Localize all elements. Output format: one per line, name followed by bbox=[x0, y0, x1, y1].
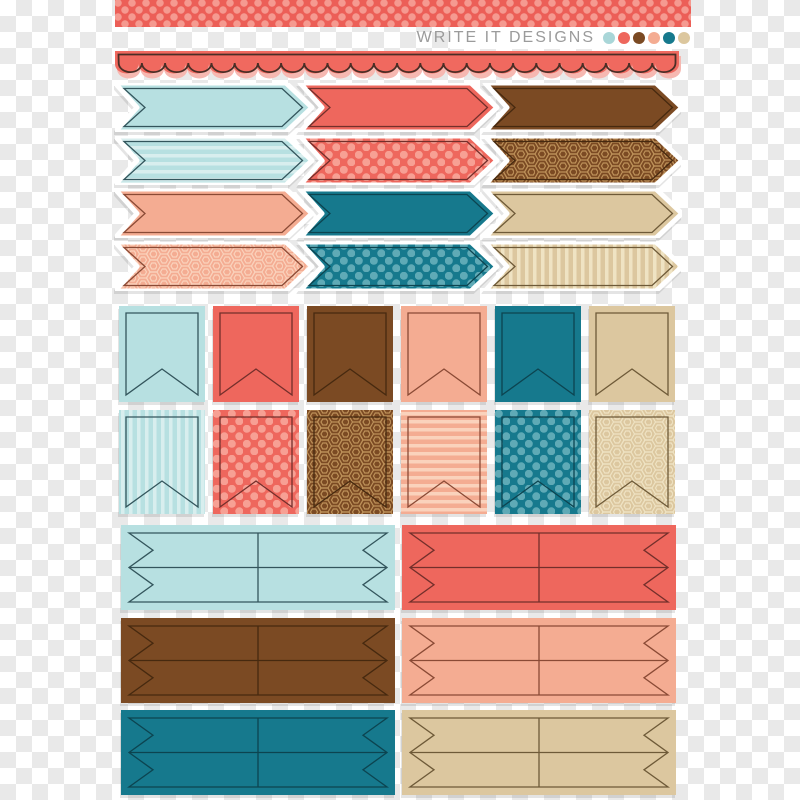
arrow-row-graphic bbox=[115, 83, 682, 132]
pennant-flag-sticker bbox=[401, 306, 487, 402]
arrow-sticker bbox=[485, 83, 682, 132]
pennant-flag-sticker bbox=[307, 410, 393, 514]
brand-watermark-text: WRITE IT DESIGNS bbox=[417, 30, 595, 46]
ribbon-banner-row bbox=[121, 525, 676, 610]
pennant-flag-row bbox=[119, 410, 675, 514]
brand-color-dots bbox=[600, 32, 690, 44]
arrow-sticker-row bbox=[115, 242, 682, 291]
arrow-sticker bbox=[485, 242, 682, 291]
pennant-flag-sticker bbox=[119, 306, 205, 402]
ribbon-banner-sticker bbox=[402, 525, 676, 610]
scallop-border-sticker bbox=[115, 51, 682, 83]
pennant-flag-sticker bbox=[213, 410, 299, 514]
pennant-flag-sticker bbox=[495, 410, 581, 514]
ribbon-banner-sticker bbox=[121, 710, 395, 795]
brand-dot bbox=[603, 32, 615, 44]
ribbon-banner-sticker bbox=[402, 710, 676, 795]
arrow-sticker-row bbox=[115, 136, 682, 185]
arrow-row-graphic bbox=[115, 136, 682, 185]
pennant-flag-sticker bbox=[307, 306, 393, 402]
arrow-sticker bbox=[115, 242, 312, 291]
pennant-flag-sticker bbox=[589, 306, 675, 402]
arrow-row-graphic bbox=[115, 189, 682, 238]
pennant-flag-sticker bbox=[495, 306, 581, 402]
arrow-sticker bbox=[115, 136, 312, 185]
arrow-sticker bbox=[300, 83, 497, 132]
pennant-flag-sticker bbox=[213, 306, 299, 402]
ribbon-banner-sticker bbox=[121, 618, 395, 703]
pennant-flag-sticker bbox=[401, 410, 487, 514]
ribbon-banner-sticker bbox=[402, 618, 676, 703]
brand-dot bbox=[633, 32, 645, 44]
brand-dot bbox=[663, 32, 675, 44]
pennant-flag-row bbox=[119, 306, 675, 402]
arrow-sticker bbox=[115, 189, 312, 238]
brand-watermark-band: WRITE IT DESIGNS bbox=[450, 27, 694, 49]
arrow-sticker bbox=[485, 189, 682, 238]
arrow-sticker bbox=[300, 189, 497, 238]
brand-dot bbox=[618, 32, 630, 44]
polka-dot-washi-tape bbox=[115, 0, 691, 27]
arrow-sticker bbox=[300, 242, 497, 291]
pennant-flag-sticker bbox=[589, 410, 675, 514]
brand-dot bbox=[678, 32, 690, 44]
arrow-sticker-row bbox=[115, 189, 682, 238]
ribbon-banner-row bbox=[121, 618, 676, 703]
sticker-sheet-canvas: WRITE IT DESIGNS bbox=[0, 0, 800, 800]
arrow-sticker bbox=[115, 83, 312, 132]
ribbon-banner-row bbox=[121, 710, 676, 795]
arrow-row-graphic bbox=[115, 242, 682, 291]
ribbon-banner-sticker bbox=[121, 525, 395, 610]
arrow-sticker bbox=[485, 136, 682, 185]
arrow-sticker bbox=[300, 136, 497, 185]
brand-dot bbox=[648, 32, 660, 44]
scallop-border-graphic bbox=[115, 51, 682, 83]
pennant-flag-sticker bbox=[119, 410, 205, 514]
arrow-sticker-row bbox=[115, 83, 682, 132]
